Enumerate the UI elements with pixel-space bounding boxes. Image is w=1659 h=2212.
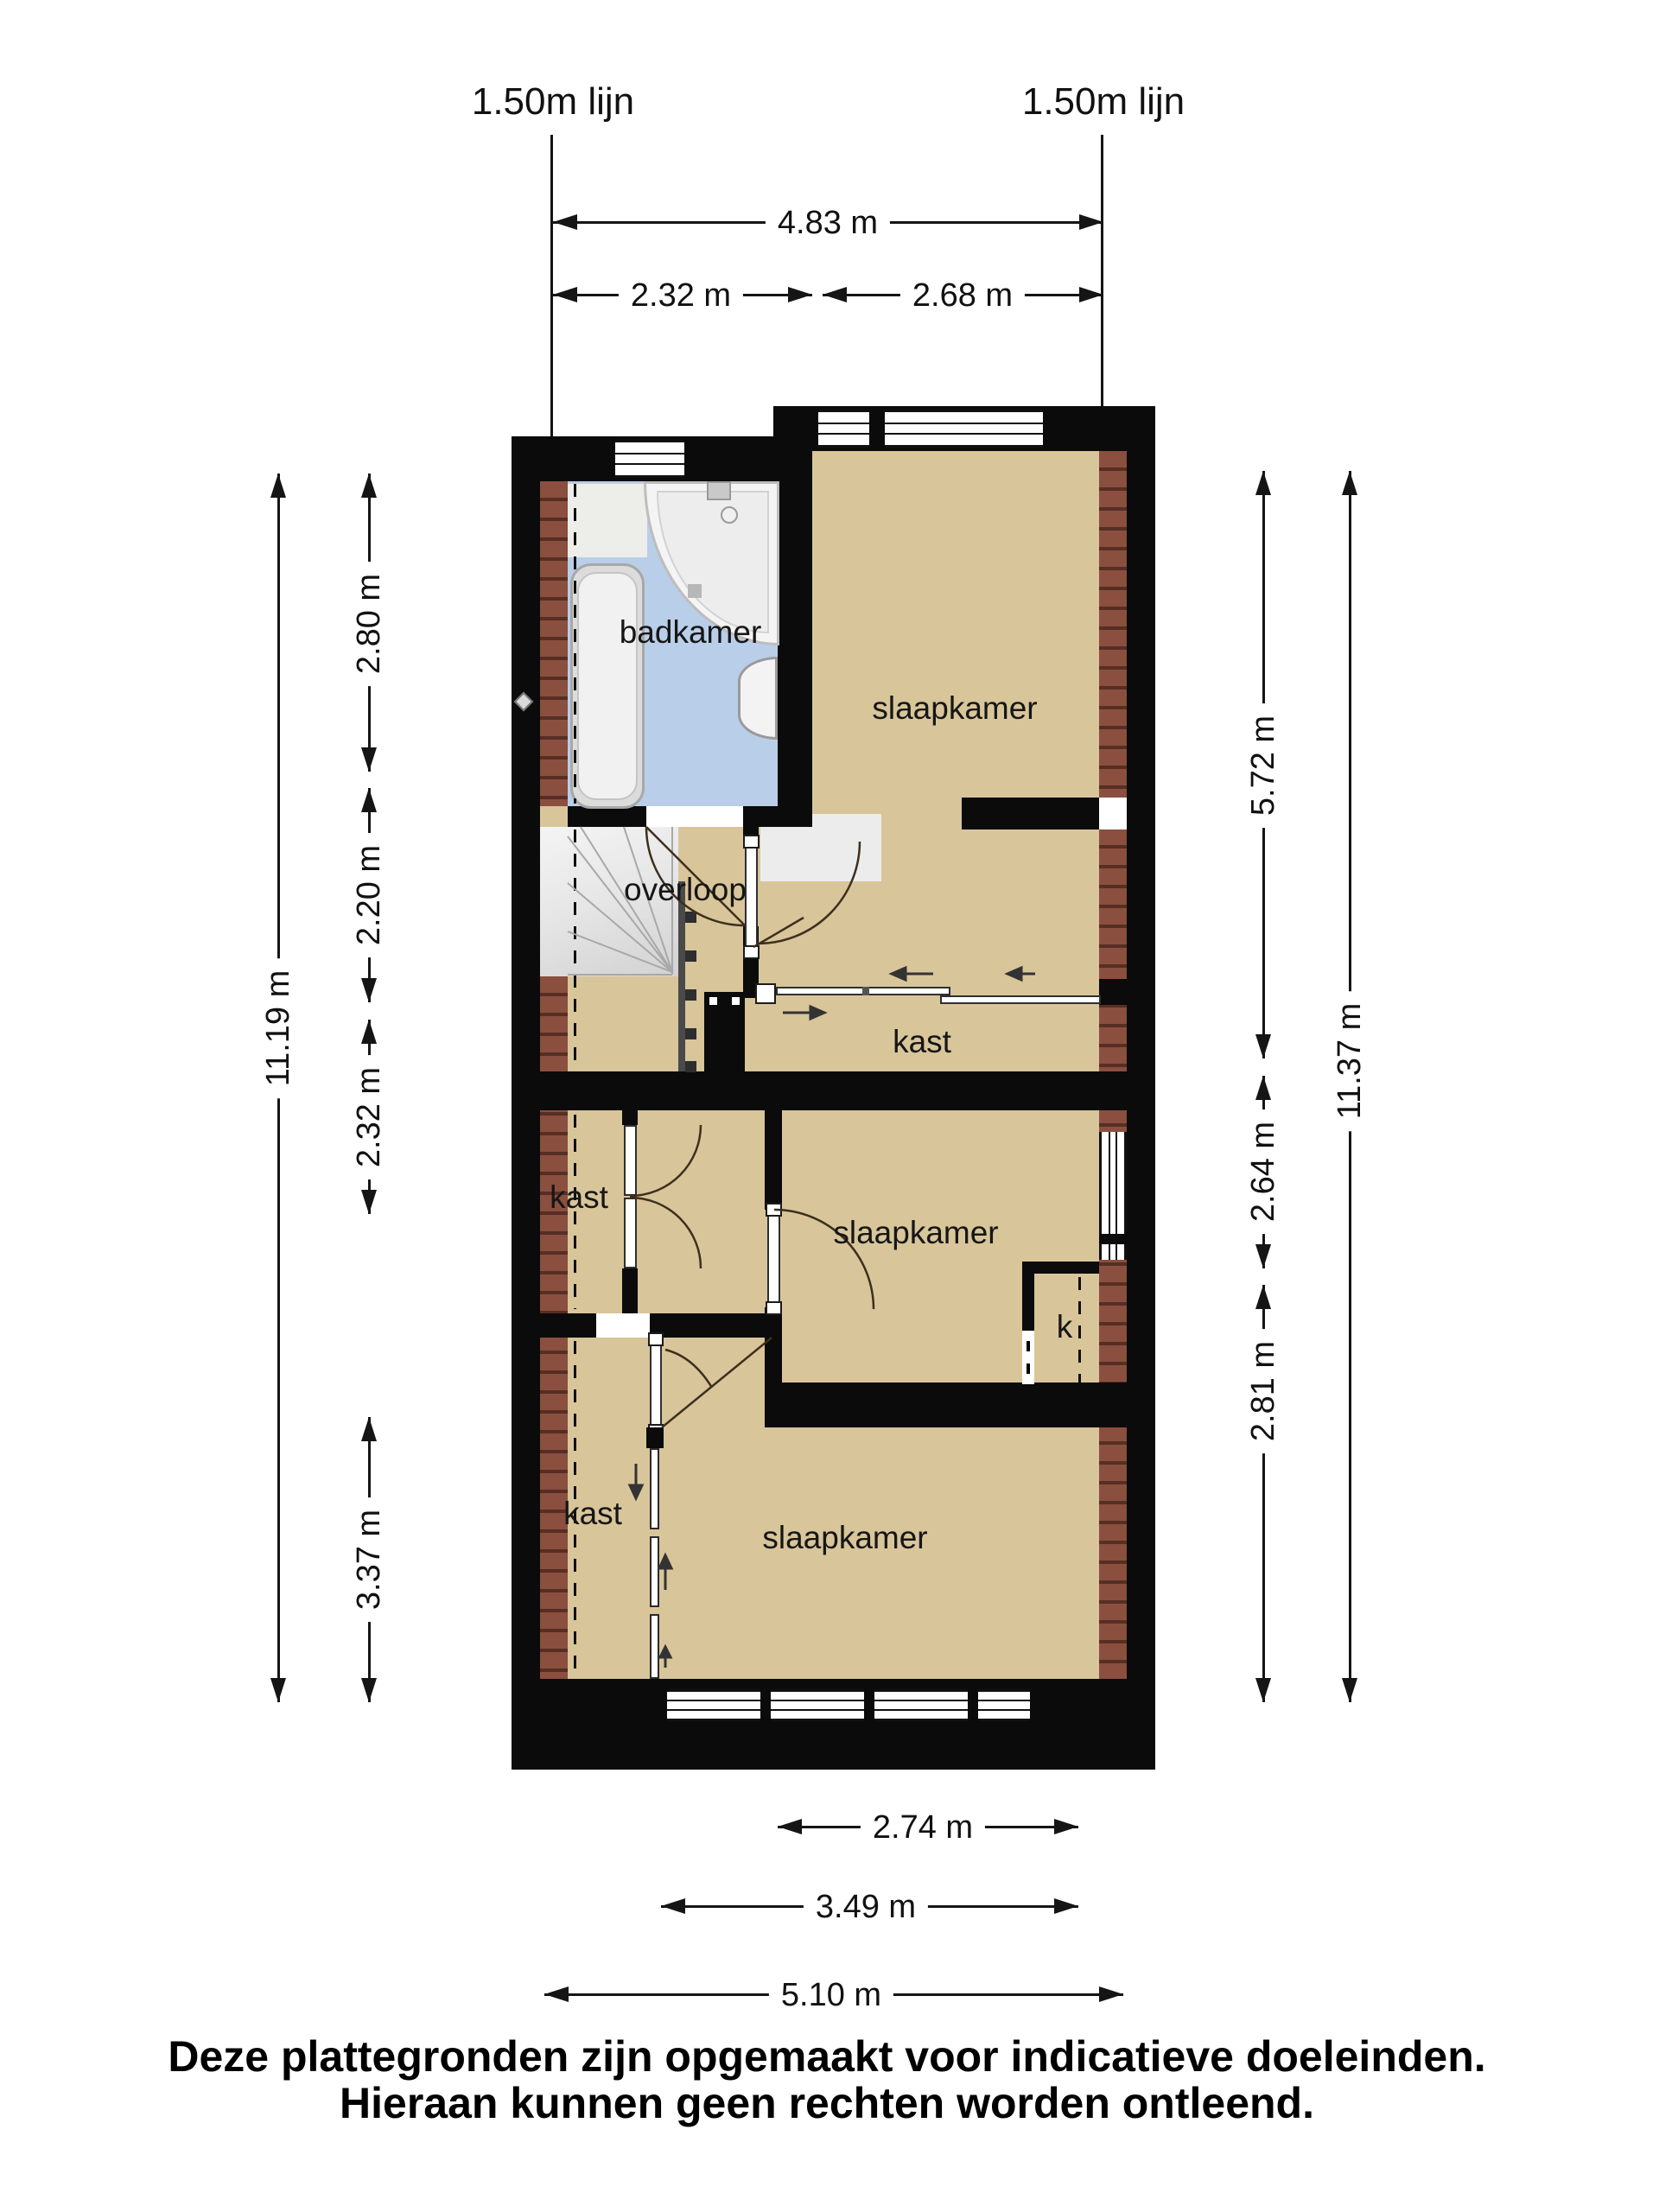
room-label-closet-mid: kast: [893, 1024, 951, 1060]
arrow-down-icon: [1255, 1034, 1271, 1058]
wall-right: [1127, 406, 1155, 1770]
arrow-up-icon: [361, 1020, 377, 1044]
slope-dash-line: [574, 484, 576, 804]
dim-right-1: 5.72 m: [1245, 703, 1281, 828]
window-mullion: [1099, 1234, 1127, 1244]
dim-bottom-3: 5.10 m: [769, 1977, 893, 2013]
arrow-right-icon: [1054, 1819, 1078, 1834]
window-top-right: [818, 410, 1043, 448]
arrow-right-icon: [1054, 1898, 1078, 1914]
balustrade-post: [685, 1061, 696, 1072]
door-leaf-bottom: [650, 1339, 662, 1430]
arrow-up-icon: [1255, 1076, 1271, 1100]
dim-bottom-2: 3.49 m: [804, 1889, 928, 1925]
arrow-up-icon: [1342, 471, 1357, 495]
dim-left-2: 2.20 m: [351, 833, 387, 957]
dim-top-right: 2.68 m: [900, 277, 1025, 314]
balustrade-post: [685, 989, 696, 1001]
arrow-right-icon: [1099, 1986, 1123, 2002]
door-jamb: [743, 835, 760, 849]
door-jamb: [648, 1332, 664, 1346]
height-line-label-right: 1.50m lijn: [1022, 80, 1185, 124]
closet-door-leaf-2: [624, 1198, 637, 1268]
door-jamb: [743, 945, 760, 959]
door-opening: [596, 1313, 650, 1338]
k-door-dash: [1027, 1363, 1030, 1374]
arrow-down-icon: [361, 747, 377, 772]
arrow-right-icon: [788, 287, 812, 302]
arrow-down-icon: [361, 978, 377, 1002]
height-line-label-left: 1.50m lijn: [472, 80, 634, 124]
dim-bottom-1: 2.74 m: [861, 1809, 985, 1846]
partition-cap: [646, 1427, 664, 1448]
sink: [738, 657, 778, 740]
arrow-down-icon: [361, 1190, 377, 1214]
shower-drain-icon: [688, 584, 702, 598]
brick-gap: [1099, 798, 1127, 829]
height-line-left: [550, 135, 553, 436]
window-mullion: [869, 410, 885, 448]
balustrade-post: [685, 912, 696, 923]
wall-top-step: [773, 406, 812, 481]
wall-k-left: [1022, 1274, 1034, 1331]
arrow-left-icon: [553, 214, 577, 230]
window-mullion: [864, 1689, 874, 1721]
arrow-down-icon: [361, 1678, 377, 1702]
shower-valve-icon: [707, 481, 731, 500]
wall-bath-bedroom: [778, 481, 812, 827]
bath-door-opening: [646, 806, 743, 827]
bathroom-light-area: [568, 484, 647, 557]
dim-right-outer: 11.37 m: [1332, 991, 1368, 1131]
arrow-left-icon: [544, 1986, 569, 2002]
door-leaf-midbedroom: [767, 1210, 780, 1307]
disclaimer-line-1: Deze plattegronden zijn opgemaakt voor i…: [168, 2031, 1485, 2082]
dim-left-3: 2.32 m: [351, 1055, 387, 1179]
dim-right-2: 2.64 m: [1245, 1109, 1281, 1234]
room-label-bedroom-top: slaapkamer: [872, 690, 1037, 727]
closet-door-leaf-1: [624, 1125, 637, 1196]
arrow-down-icon: [1255, 1244, 1271, 1268]
partition-segment: [650, 1448, 659, 1529]
arrow-up-icon: [1255, 471, 1271, 495]
window-mullion: [760, 1689, 771, 1721]
shaft-dot: [709, 997, 717, 1005]
arrow-down-icon: [270, 1678, 286, 1702]
window-top-left: [615, 440, 684, 478]
arrow-right-icon: [1079, 287, 1103, 302]
wall-stub: [622, 1268, 638, 1313]
brick-right: [1099, 451, 1127, 1679]
arrow-up-icon: [361, 788, 377, 812]
door-jamb: [766, 1301, 782, 1315]
room-label-closet-left: kast: [550, 1179, 608, 1216]
window-mullion: [968, 1689, 978, 1721]
door-leaf-landing: [745, 845, 758, 949]
balustrade-post: [685, 950, 696, 962]
arrow-up-icon: [270, 474, 286, 498]
slope-dash-line: [574, 829, 576, 1067]
sliding-door-panel-2: [940, 995, 1101, 1004]
door-jamb: [755, 983, 776, 1004]
arrow-left-icon: [823, 287, 847, 302]
k-door-dash: [1027, 1341, 1030, 1351]
bathtub-inner: [577, 572, 638, 800]
room-label-landing: overloop: [624, 872, 747, 908]
dim-top-left: 2.32 m: [619, 277, 743, 314]
arrow-left-icon: [661, 1898, 685, 1914]
wall-middle: [540, 1071, 1127, 1110]
dim-left-1: 2.80 m: [351, 562, 387, 686]
partition-segment: [650, 1614, 659, 1679]
sliding-door-end-wall: [1099, 979, 1127, 1005]
door-jamb: [766, 1203, 782, 1217]
room-label-closet-small: k: [1057, 1309, 1073, 1345]
shower-head-icon: [721, 506, 738, 524]
arrow-up-icon: [1255, 1285, 1271, 1309]
wall-left: [512, 436, 540, 1770]
room-label-closet-bottom: kast: [563, 1496, 622, 1532]
wall-bedroom-bottom: [962, 798, 1099, 829]
room-label-bedroom-bottom: slaapkamer: [762, 1520, 927, 1556]
room-label-bathroom: badkamer: [620, 614, 762, 651]
arrow-down-icon: [1255, 1678, 1271, 1702]
shaft-dot: [732, 997, 740, 1005]
height-line-right: [1101, 135, 1103, 406]
brick-left-upper: [540, 481, 568, 806]
wall-k-top: [1022, 1262, 1099, 1274]
partition-segment: [650, 1536, 659, 1607]
wall-midbedroom-bottom: [765, 1382, 1127, 1427]
dim-left-outer: 11.19 m: [260, 958, 296, 1098]
arrow-left-icon: [553, 287, 577, 302]
dim-right-3: 2.81 m: [1245, 1329, 1281, 1453]
arrow-left-icon: [778, 1819, 802, 1834]
wall-stub: [622, 1110, 638, 1125]
arrow-right-icon: [1079, 214, 1103, 230]
floorplan-canvas: 1.50m lijn 1.50m lijn 4.83 m 2.32 m 2.68…: [0, 0, 1659, 2212]
dim-top-overall: 4.83 m: [766, 205, 890, 241]
arrow-up-icon: [361, 474, 377, 498]
arrow-up-icon: [361, 1417, 377, 1441]
arrow-down-icon: [1342, 1678, 1357, 1702]
room-label-bedroom-mid: slaapkamer: [833, 1215, 998, 1251]
wall-midbedroom-left-upper: [765, 1110, 782, 1210]
sliding-door-handle: [862, 987, 869, 995]
k-door: [1022, 1331, 1034, 1384]
balustrade-post: [685, 1028, 696, 1039]
dim-left-4: 3.37 m: [351, 1497, 387, 1622]
disclaimer-line-2: Hieraan kunnen geen rechten worden ontle…: [340, 2078, 1314, 2128]
balustrade-rail: [678, 881, 685, 1071]
slope-dash-line-k: [1078, 1277, 1081, 1382]
